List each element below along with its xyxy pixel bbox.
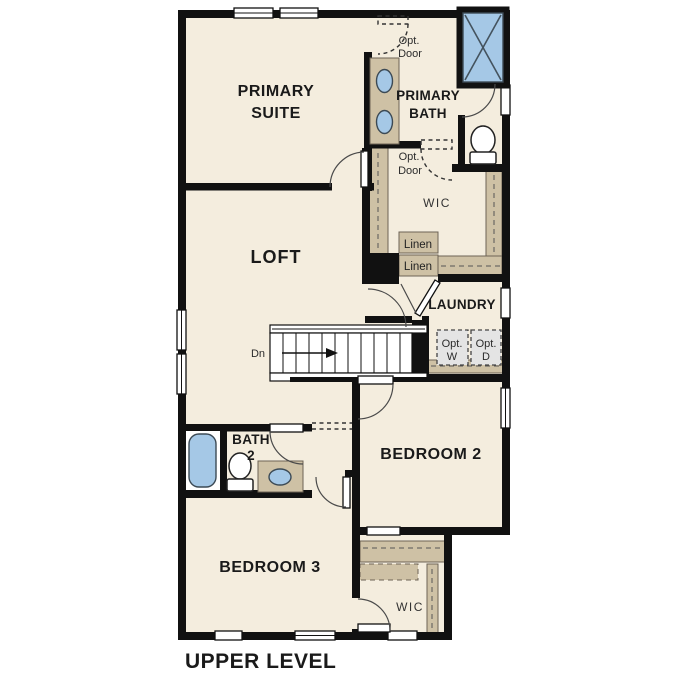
opt-door-mid-label-2: Door	[398, 165, 422, 177]
opt-door-top-label-2: Door	[398, 48, 422, 60]
opt-washer-label-1: Opt.	[442, 338, 463, 350]
floor-plan-page: PRIMARY SUITE PRIMARY BATH Opt. Door Opt…	[0, 0, 687, 687]
primary-suite-label-2: SUITE	[251, 105, 301, 122]
primary-bath-label-2: BATH	[409, 106, 447, 121]
page-title: UPPER LEVEL	[185, 650, 336, 673]
bath2-toilet-tank	[227, 479, 253, 491]
opt-dryer-label-1: Opt.	[476, 338, 497, 350]
primary-toilet-tank	[470, 152, 496, 164]
linen-label-1: Linen	[404, 239, 432, 251]
bath2-door-leaf	[270, 424, 303, 432]
bath2-label-2: 2	[247, 448, 255, 463]
bedroom3-door-leaf	[343, 477, 350, 508]
opt-dryer-label-2: D	[482, 351, 490, 363]
primary-toilet-bowl	[471, 126, 495, 154]
bath2-label-1: BATH	[232, 432, 270, 447]
wic2-shelf-mid	[360, 564, 418, 580]
laundry-label: LAUNDRY	[428, 297, 496, 312]
primary-suite-label-1: PRIMARY	[238, 83, 315, 100]
opt-door-top-label-1: Opt.	[399, 35, 420, 47]
opt-door-mid-label-1: Opt.	[399, 151, 420, 163]
bedroom3-label: BEDROOM 3	[219, 559, 320, 576]
bathtub	[189, 434, 216, 487]
wic-upper-label: WIC	[423, 196, 451, 210]
wic2-door-leaf	[358, 624, 390, 632]
wic-lower-label: WIC	[396, 600, 424, 614]
primary-bath-label-1: PRIMARY	[396, 88, 460, 103]
opt-washer-label-2: W	[447, 351, 458, 363]
stairs-down-label: Dn	[251, 348, 265, 360]
linen-label-2: Linen	[404, 261, 432, 273]
floor-plan-svg: PRIMARY SUITE PRIMARY BATH Opt. Door Opt…	[0, 0, 687, 687]
bedroom2-closet-opening	[367, 527, 400, 535]
primary-suite-door-leaf	[361, 151, 368, 187]
bedroom2-label: BEDROOM 2	[380, 446, 481, 463]
loft-label: LOFT	[251, 247, 302, 267]
vanity-sink-1	[377, 70, 393, 93]
bath2-sink	[269, 469, 291, 485]
wic2-shelf-top	[360, 541, 446, 562]
bedroom2-door-leaf	[358, 376, 393, 384]
vanity-sink-2	[377, 111, 393, 134]
